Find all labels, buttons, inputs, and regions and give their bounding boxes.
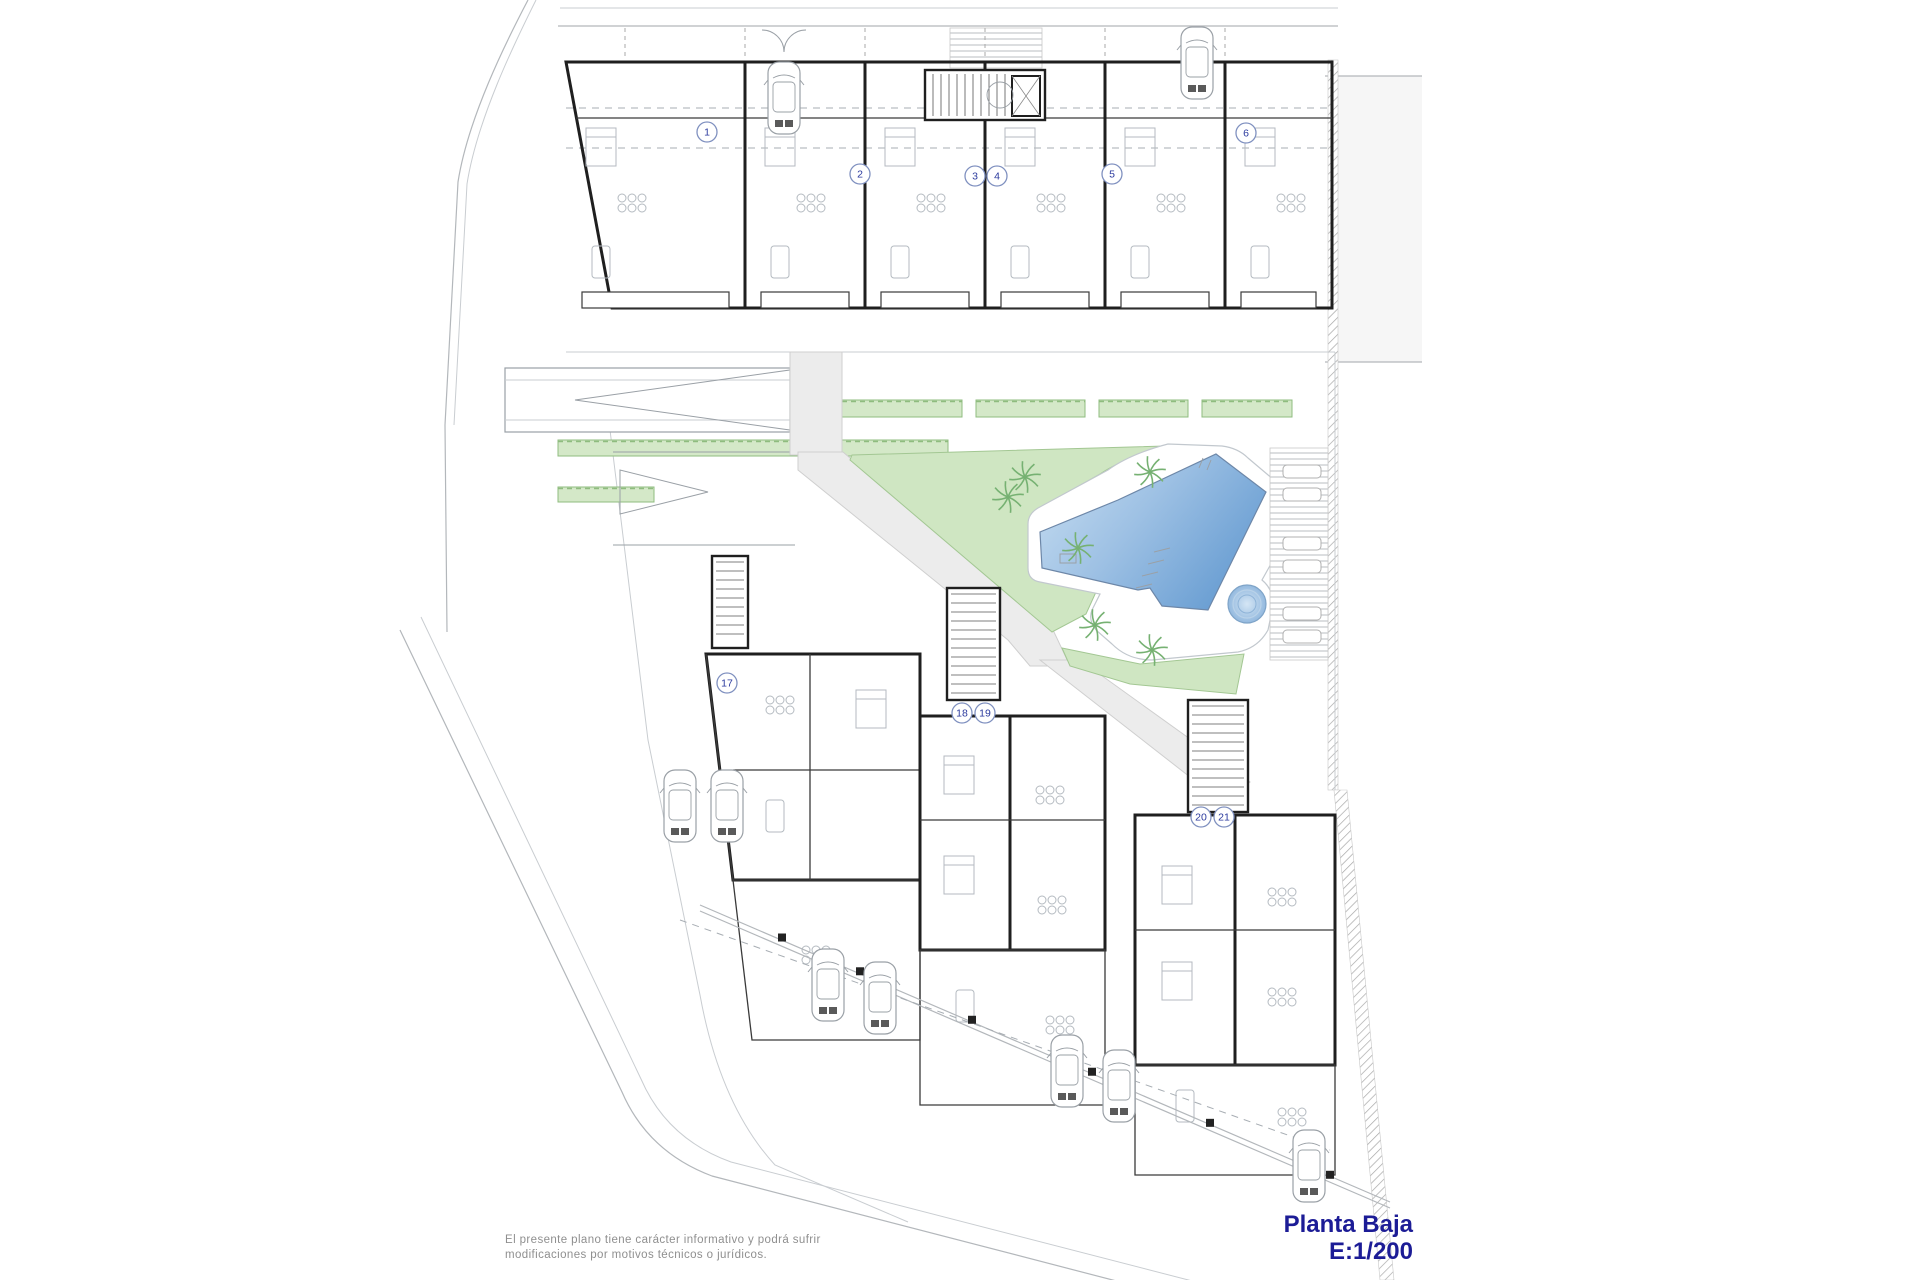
furniture-sofa (891, 246, 909, 278)
furniture-table (1278, 1108, 1306, 1126)
car (860, 962, 900, 1034)
boundary-tie (1326, 1171, 1334, 1179)
car (707, 770, 747, 842)
elevator (1012, 76, 1040, 116)
unit-number: 17 (721, 678, 733, 690)
furniture-table (618, 194, 646, 212)
furniture-table (1038, 896, 1066, 914)
unit-number: 6 (1243, 128, 1249, 140)
disclaimer-line-1: El presente plano tiene carácter informa… (505, 1234, 821, 1246)
car (660, 770, 700, 842)
furniture-sofa (1251, 246, 1269, 278)
furniture-bed (1005, 128, 1035, 166)
boundary-tie (856, 967, 864, 975)
furniture-sofa (771, 246, 789, 278)
pergola-slot (1283, 537, 1321, 550)
green-strip (1202, 400, 1292, 417)
unit-marker-6: 6 (1236, 123, 1256, 143)
terrace (761, 292, 849, 308)
furniture-table (1277, 194, 1305, 212)
furniture-table (766, 696, 794, 714)
pergola-slot (1283, 560, 1321, 573)
plan-title: Planta Baja (1284, 1211, 1414, 1238)
unit-number: 20 (1195, 812, 1207, 824)
unit-marker-17: 17 (717, 673, 737, 693)
stair-core (947, 588, 1000, 700)
furniture-sofa (766, 800, 784, 832)
plan-scale: E:1/200 (1329, 1238, 1413, 1265)
neighbor-parcel (1325, 60, 1422, 1280)
unit-number: 3 (972, 171, 978, 183)
boundary-tie (778, 934, 786, 942)
unit-marker-20: 20 (1191, 807, 1211, 827)
furniture-bed (885, 128, 915, 166)
unit-marker-4: 4 (987, 166, 1007, 186)
walkway-vertical (790, 352, 842, 455)
car (1177, 27, 1217, 99)
furniture-bed (944, 756, 974, 794)
car (808, 949, 848, 1021)
car (1099, 1050, 1139, 1122)
unit-furniture (586, 128, 1305, 278)
pergola-slot (1283, 630, 1321, 643)
pergola-parking (1270, 448, 1328, 660)
furniture-sofa (1011, 246, 1029, 278)
pergola-slot (1283, 488, 1321, 501)
boundary-tie (1206, 1119, 1214, 1127)
unit-number: 2 (857, 169, 863, 181)
furniture-bed (1162, 866, 1192, 904)
stair-core (1188, 700, 1248, 812)
car (1289, 1130, 1329, 1202)
unit-marker-19: 19 (975, 703, 995, 723)
boundary-tie (1088, 1068, 1096, 1076)
stair-core (712, 556, 748, 648)
annotations: Planta Baja E:1/200 El presente plano ti… (505, 1211, 1414, 1265)
furniture-table (797, 194, 825, 212)
unit-marker-3: 3 (965, 166, 985, 186)
disclaimer-line-2: modificaciones por motivos técnicos o ju… (505, 1249, 767, 1261)
furniture-table (1046, 1016, 1074, 1034)
unit-number: 4 (994, 171, 1000, 183)
pergola-slot (1283, 465, 1321, 478)
furniture-table (1268, 888, 1296, 906)
car (764, 62, 804, 134)
terrace (1001, 292, 1089, 308)
unit-number: 5 (1109, 169, 1115, 181)
terrace (881, 292, 969, 308)
unit-marker-1: 1 (697, 122, 717, 142)
unit-marker-2: 2 (850, 164, 870, 184)
terrace (1121, 292, 1209, 308)
unit-marker-21: 21 (1214, 807, 1234, 827)
boundary-tie (968, 1016, 976, 1024)
furniture-bed (1125, 128, 1155, 166)
bottom-block-3 (1135, 815, 1335, 1175)
unit-number: 18 (956, 708, 968, 720)
furniture-bed (856, 690, 886, 728)
jacuzzi (1228, 585, 1266, 623)
furniture-table (1268, 988, 1296, 1006)
car (1047, 1035, 1087, 1107)
unit-number: 1 (704, 127, 710, 139)
unit-marker-5: 5 (1102, 164, 1122, 184)
entrance-gate-arcs (762, 30, 806, 52)
terrace (582, 292, 729, 308)
furniture-table (1157, 194, 1185, 212)
green-strip (976, 400, 1085, 417)
pergola-slot (1283, 607, 1321, 620)
furniture-bed (944, 856, 974, 894)
floor-plan-canvas: 1234561718192021 Planta Baja E:1/200 El … (0, 0, 1920, 1280)
unit-marker-18: 18 (952, 703, 972, 723)
furniture-bed (1162, 962, 1192, 1000)
furniture-table (1036, 786, 1064, 804)
unit-number: 19 (979, 708, 991, 720)
furniture-table (1037, 194, 1065, 212)
floor-plan-page: 1234561718192021 Planta Baja E:1/200 El … (0, 0, 1920, 1280)
terrace (1241, 292, 1316, 308)
green-strip (842, 400, 962, 417)
green-strip (1099, 400, 1188, 417)
furniture-sofa (1131, 246, 1149, 278)
furniture-bed (586, 128, 616, 166)
parking-dividers (625, 28, 1225, 60)
furniture-table (917, 194, 945, 212)
unit-number: 21 (1218, 812, 1230, 824)
